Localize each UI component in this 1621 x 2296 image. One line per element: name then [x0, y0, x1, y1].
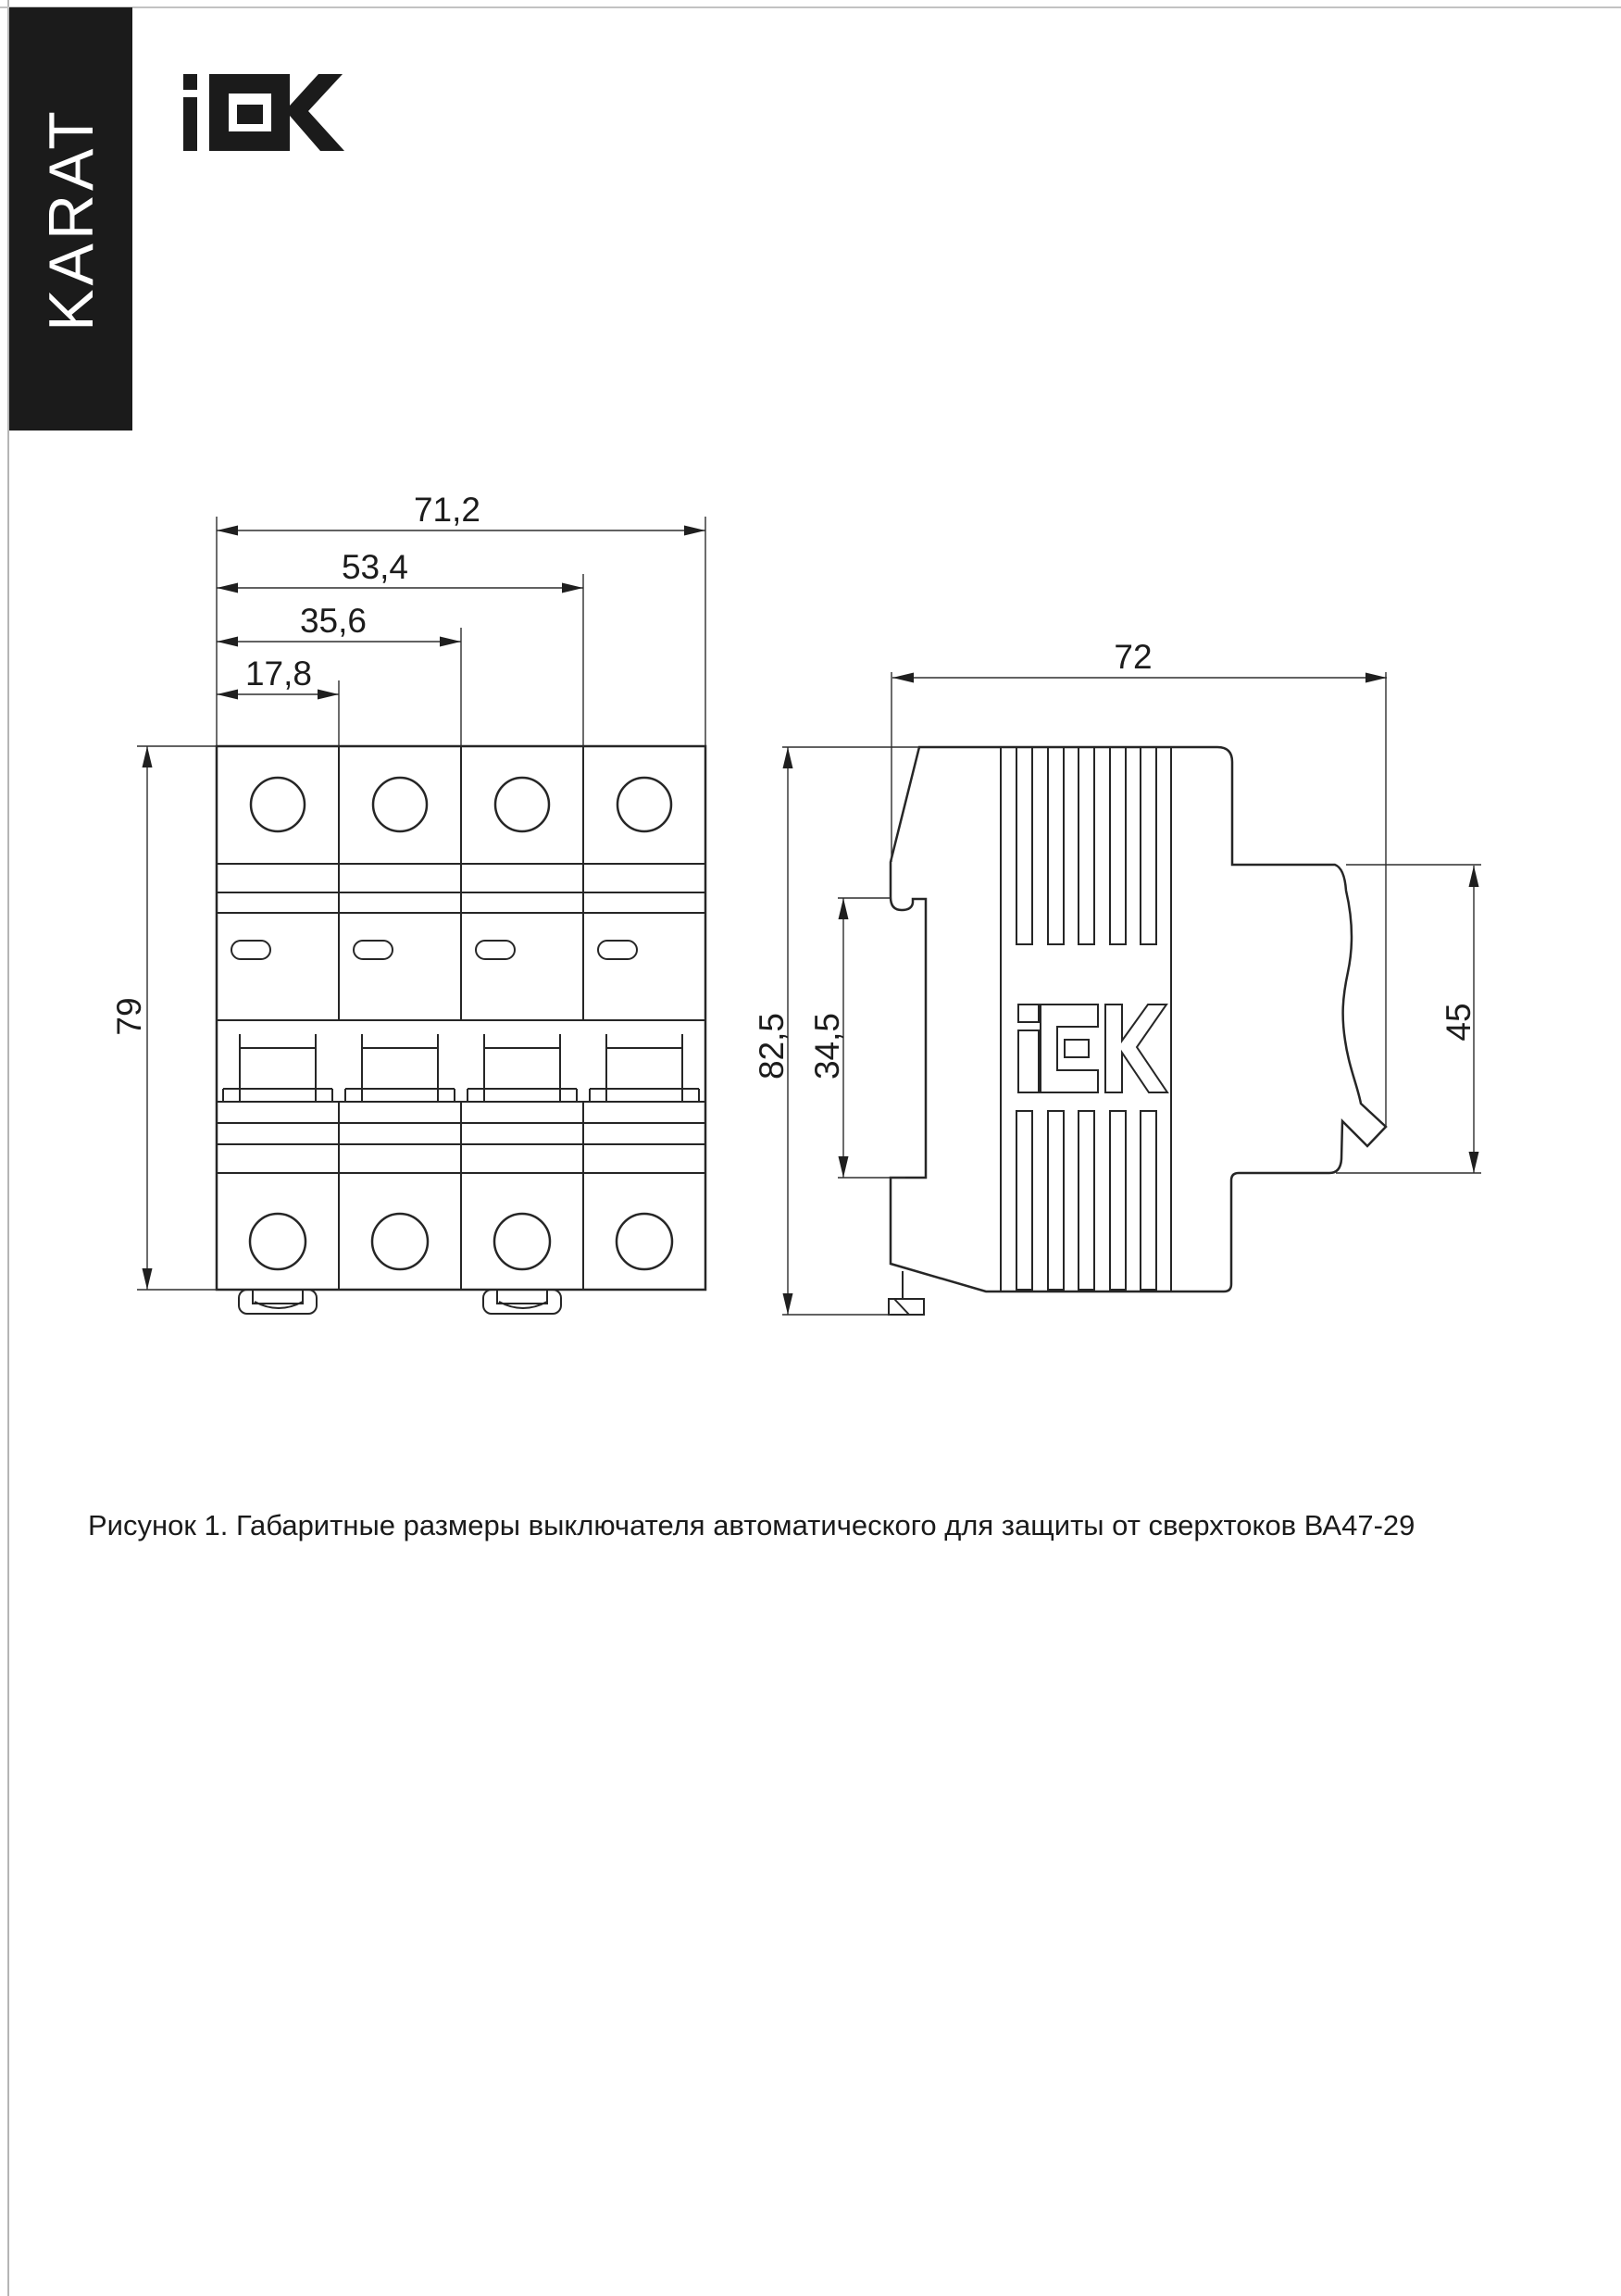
dim-total-height: 82,5	[753, 1013, 791, 1079]
toggle-lever	[590, 1034, 699, 1102]
vent-slot	[1141, 1111, 1156, 1290]
terminal-screw	[372, 1214, 428, 1269]
din-clip-latch-diagonal	[894, 1299, 909, 1315]
dimension-arrows	[783, 673, 1479, 1316]
emboss-i-dot	[1018, 1004, 1039, 1022]
vent-slot	[1048, 747, 1064, 944]
side-view	[889, 747, 1386, 1315]
emboss-e-bar	[1065, 1040, 1089, 1057]
vent-slot	[1048, 1111, 1064, 1290]
marking-window	[354, 941, 393, 959]
toggle-lever	[223, 1034, 332, 1102]
dim-total-width: 71,2	[414, 491, 480, 529]
pole-dividers	[339, 746, 583, 1290]
emboss-i-stem	[1018, 1030, 1039, 1092]
vent-slot	[1016, 1111, 1032, 1290]
terminal-screw	[250, 1214, 305, 1269]
dim-front-face-height: 45	[1440, 1003, 1478, 1041]
dim-width-1p: 17,8	[245, 655, 312, 693]
toggle-lever	[468, 1034, 577, 1102]
vent-slot	[1110, 1111, 1126, 1290]
terminal-screw	[494, 1214, 550, 1269]
dim-width-2p: 35,6	[300, 602, 367, 640]
front-view-dimensions: 71,2 53,4 35,6 17,8 79	[110, 491, 705, 1290]
emboss-k	[1105, 1004, 1167, 1092]
din-clip-side-detail	[889, 1271, 924, 1315]
vent-slot	[1016, 747, 1032, 944]
terminal-screw	[373, 778, 427, 831]
terminal-screw	[495, 778, 549, 831]
marking-window	[476, 941, 515, 959]
side-view-dimensions: 72 82,5 34,5 45	[753, 638, 1481, 1315]
terminal-screw	[617, 778, 671, 831]
dim-width-3p: 53,4	[342, 548, 408, 586]
front-view	[217, 746, 705, 1314]
side-face-band-lines	[1001, 747, 1171, 1291]
terminal-screw	[251, 778, 305, 831]
din-clip	[483, 1290, 561, 1314]
marking-window	[231, 941, 270, 959]
iek-embossed-logo-icon	[1018, 1004, 1167, 1092]
dimension-arrows	[143, 526, 706, 1291]
figure-caption: Рисунок 1. Габаритные размеры выключател…	[88, 1509, 1415, 1542]
din-clip-inner	[253, 1290, 303, 1304]
vent-slot	[1141, 747, 1156, 944]
vent-slot	[1079, 747, 1094, 944]
din-clip-inner	[497, 1290, 547, 1304]
terminal-screw	[617, 1214, 672, 1269]
dimension-drawing: 71,2 53,4 35,6 17,8 79	[0, 0, 1621, 2296]
datasheet-page: KARAT	[0, 0, 1621, 2296]
extension-lines	[782, 672, 1481, 1315]
vent-slot	[1079, 1111, 1094, 1290]
marking-windows	[231, 941, 637, 959]
dim-front-height: 79	[110, 997, 148, 1035]
vent-slot	[1110, 747, 1126, 944]
dim-din-span: 34,5	[808, 1013, 846, 1079]
toggle-lever	[345, 1034, 455, 1102]
vent-slots-bottom	[1016, 1111, 1156, 1290]
din-rail-clips-front	[239, 1290, 561, 1314]
dim-depth: 72	[1114, 638, 1152, 676]
din-clip	[239, 1290, 317, 1314]
toggle-levers	[223, 1034, 699, 1102]
vent-slots-top	[1016, 747, 1156, 944]
marking-window	[598, 941, 637, 959]
